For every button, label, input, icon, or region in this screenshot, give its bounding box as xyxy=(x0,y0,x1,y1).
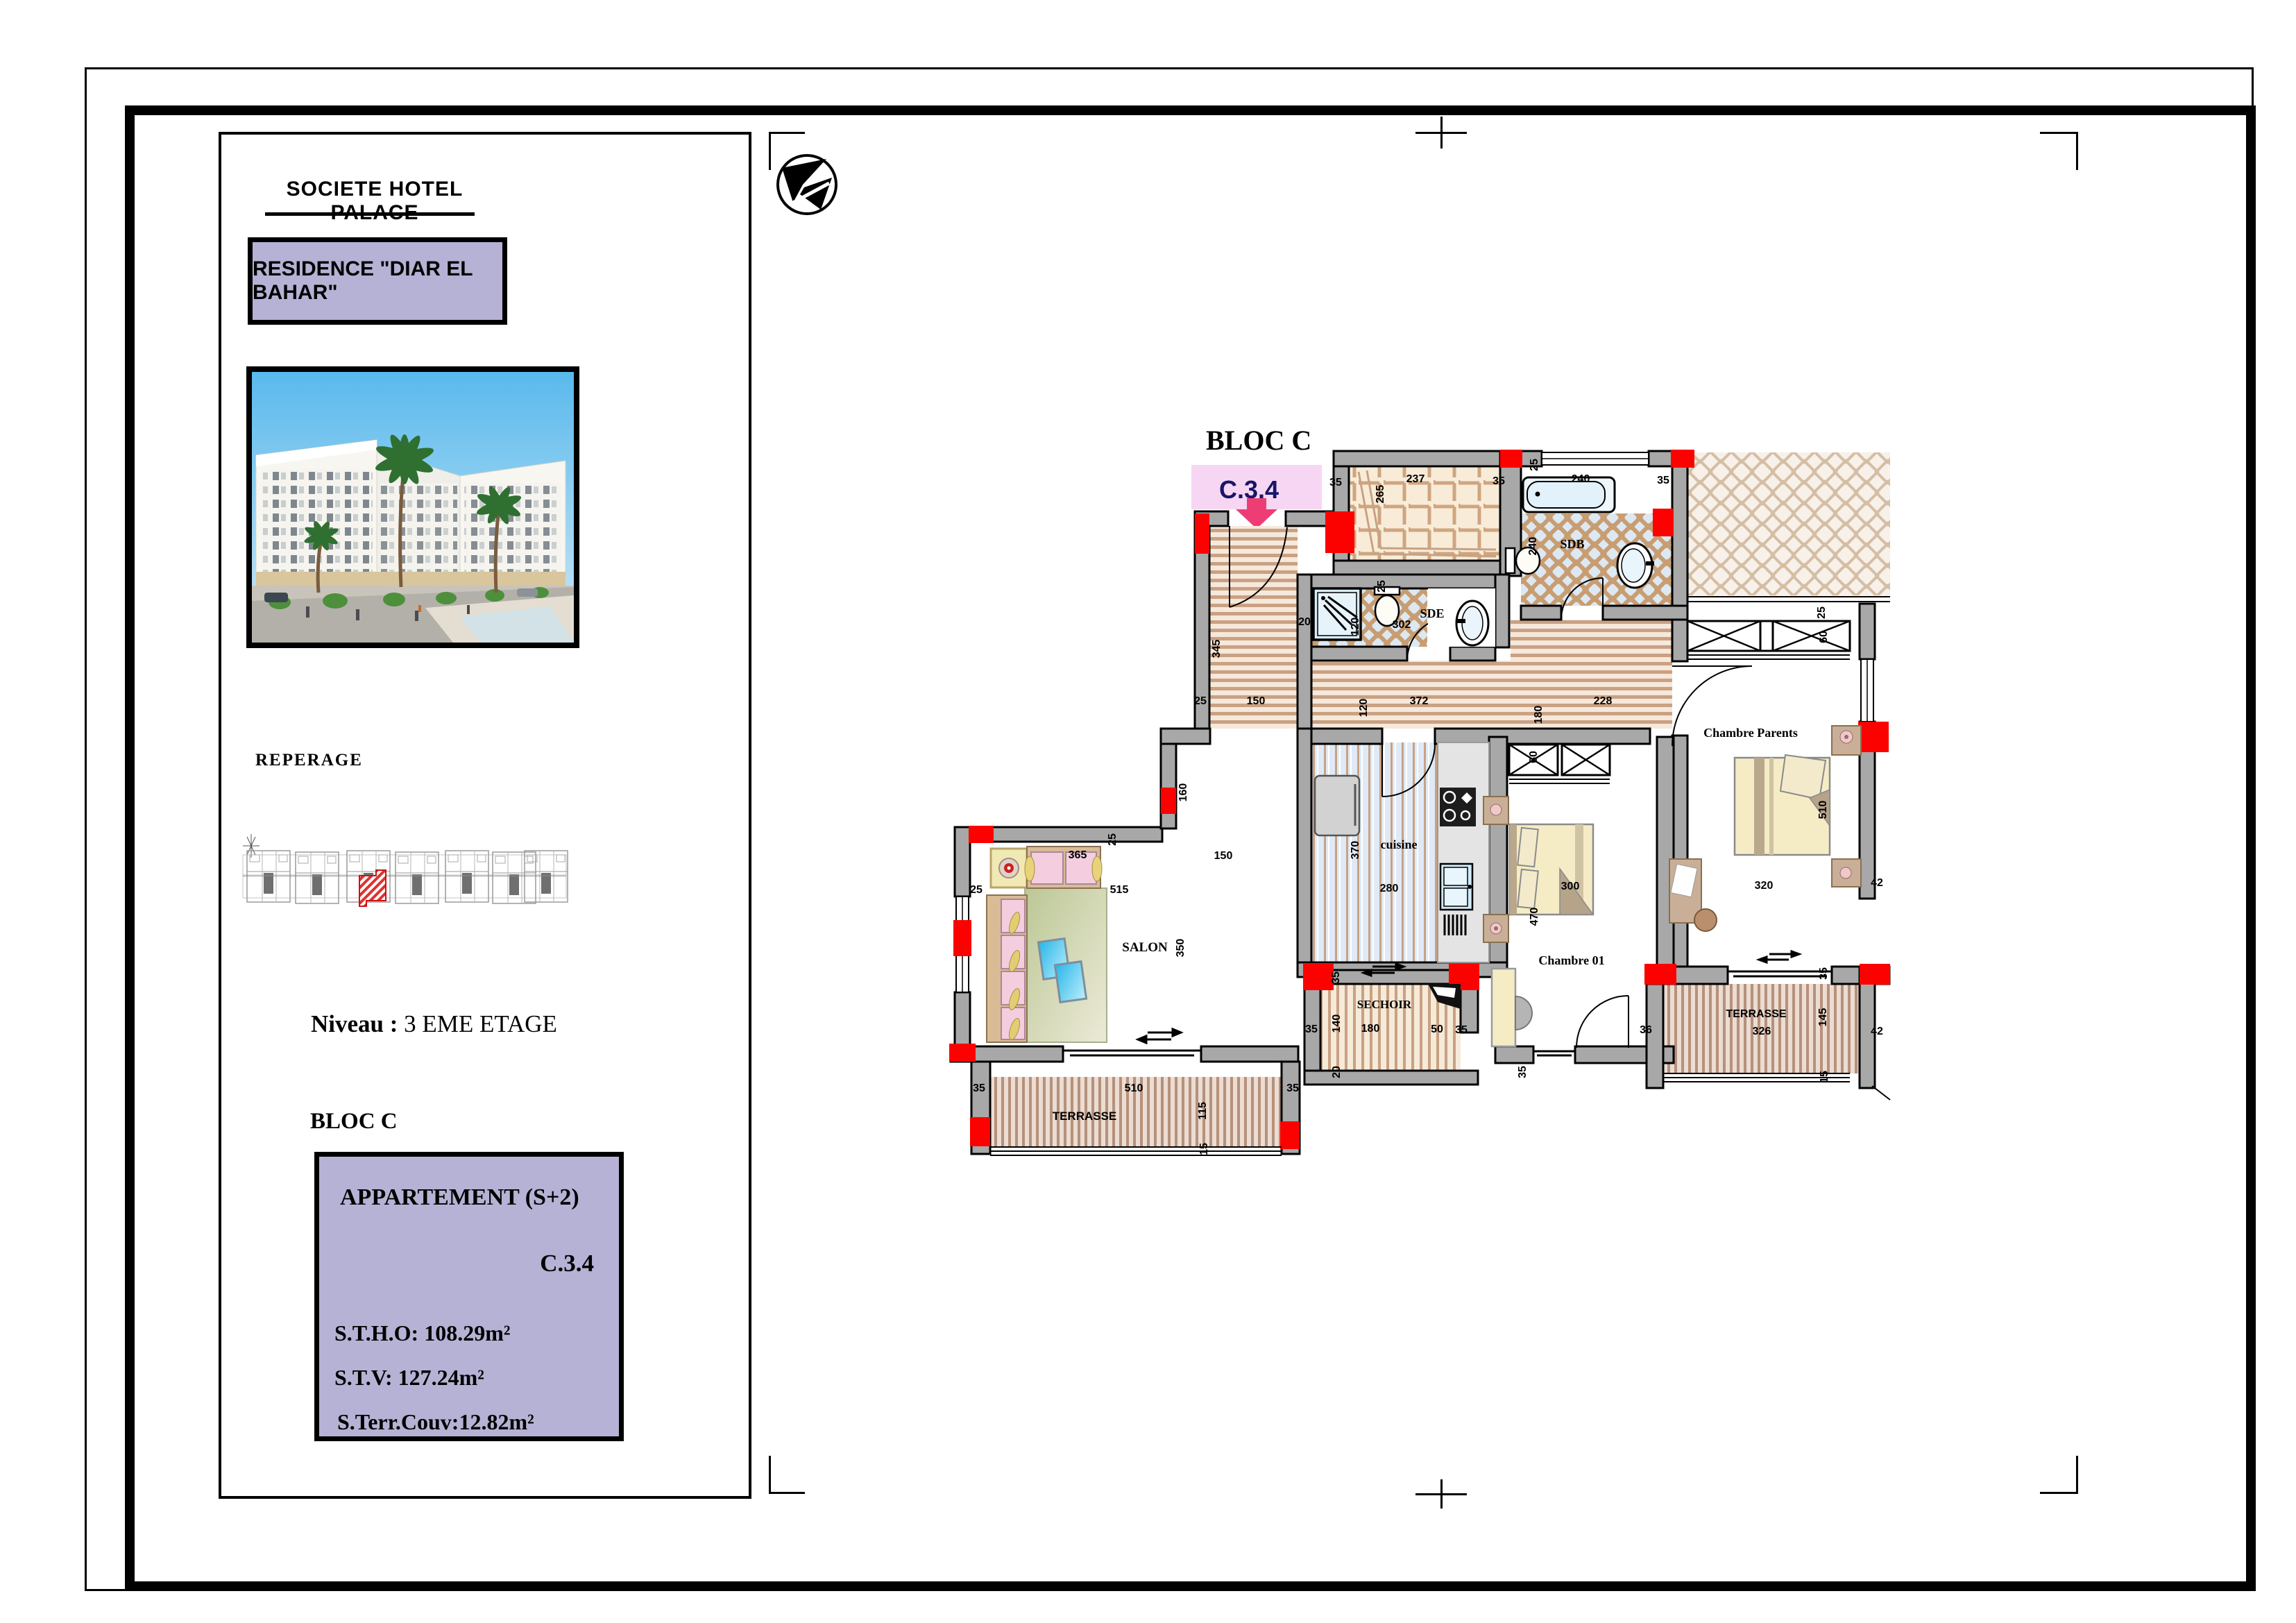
residence-name: RESIDENCE "DIAR EL BAHAR" xyxy=(253,257,502,305)
dimension-label: 510 xyxy=(1125,1082,1143,1094)
dimension-label: 237 xyxy=(1406,473,1425,485)
dimension-label: 370 xyxy=(1350,841,1361,860)
bathtub xyxy=(1523,477,1615,512)
parents-bedroom-furniture xyxy=(1669,726,1861,931)
dimension-label: 15 xyxy=(1819,1071,1830,1083)
dimension-label: 345 xyxy=(1211,640,1223,658)
dimension-label: 470 xyxy=(1529,908,1540,926)
dimension-label: 35 xyxy=(1329,477,1342,488)
building-illustration xyxy=(252,372,574,643)
drawing-sheet: SOCIETE HOTEL PALACE RESIDENCE "DIAR EL … xyxy=(0,0,2296,1623)
room-label: TERRASSE xyxy=(1053,1110,1117,1123)
room-label: SECHOIR xyxy=(1357,998,1412,1011)
reg-mark xyxy=(769,132,771,170)
dimension-label: 35 xyxy=(1517,1066,1529,1078)
apartment-info-box: APPARTEMENT (S+2) C.3.4 S.T.H.O: 108.29m… xyxy=(314,1152,624,1441)
dimension-label: 35 xyxy=(973,1082,985,1094)
dimension-label: 240 xyxy=(1527,537,1539,556)
reg-mark xyxy=(1440,1479,1443,1509)
room-label: Chambre 01 xyxy=(1538,953,1604,967)
bloc-label-panel: BLOC C xyxy=(310,1109,398,1135)
residence-name-box: RESIDENCE "DIAR EL BAHAR" xyxy=(248,237,507,325)
dimension-label: 25 xyxy=(1194,695,1207,707)
dimension-label: 25 xyxy=(970,884,983,896)
reperage-label: REPERAGE xyxy=(255,751,363,770)
salon-furniture xyxy=(987,847,1107,1042)
level-value: 3 EME ETAGE xyxy=(404,1010,557,1037)
dimension-label: 36 xyxy=(1640,1024,1652,1036)
dimension-label: 120 xyxy=(1350,618,1361,636)
dimension-label: 120 xyxy=(1358,699,1370,717)
reg-mark xyxy=(2076,132,2078,170)
surface-stv: S.T.V: 127.24m² xyxy=(334,1365,484,1391)
dimension-label: 42 xyxy=(1871,877,1883,889)
dimension-label: 25 xyxy=(1376,580,1388,593)
dimension-label: 228 xyxy=(1594,695,1613,707)
dimension-label: 160 xyxy=(1177,783,1189,802)
dimension-label: 115 xyxy=(1197,1102,1209,1120)
reg-mark xyxy=(2040,132,2078,134)
reg-mark xyxy=(2076,1456,2078,1494)
dimension-label: 42 xyxy=(1871,1026,1883,1037)
level-label: Niveau : xyxy=(311,1010,398,1037)
dimension-label: 20 xyxy=(1298,616,1311,628)
dimension-label: 60 xyxy=(1528,751,1540,763)
dimension-label: 365 xyxy=(1069,849,1087,861)
dimension-label: 20 xyxy=(1331,1066,1343,1078)
room-label: 326 xyxy=(1753,1026,1771,1037)
site-plan xyxy=(237,812,570,916)
company-name: SOCIETE HOTEL PALACE xyxy=(243,178,507,225)
dimension-label: 510 xyxy=(1817,801,1829,819)
room-label: SALON xyxy=(1122,940,1168,955)
reg-mark xyxy=(769,132,805,134)
dimension-label: 140 xyxy=(1331,1014,1343,1033)
dimension-label: 180 xyxy=(1533,706,1545,724)
dimension-label: 25 xyxy=(1816,606,1828,619)
dimension-label: 25 xyxy=(1107,833,1119,846)
company-underline xyxy=(265,212,475,216)
north-arrow-icon xyxy=(772,151,842,221)
dimension-label: 50 xyxy=(1431,1023,1443,1035)
dimension-label: 15 xyxy=(1198,1143,1210,1155)
reg-mark xyxy=(769,1456,771,1494)
room-label: SDE xyxy=(1420,606,1444,620)
dimension-label: 60 xyxy=(1818,631,1830,643)
apartment-code: C.3.4 xyxy=(540,1250,594,1277)
dimension-label: 35 xyxy=(1818,967,1830,980)
dimension-label: 350 xyxy=(1175,939,1187,958)
reg-mark xyxy=(2040,1492,2078,1494)
dimension-label: 145 xyxy=(1817,1008,1829,1027)
reg-mark xyxy=(769,1492,805,1494)
dimension-label: 515 xyxy=(1110,884,1129,896)
apartment-type: APPARTEMENT (S+2) xyxy=(340,1184,579,1211)
dimension-label: 150 xyxy=(1247,695,1266,707)
dimension-label: 180 xyxy=(1361,1023,1380,1035)
dimension-label: 320 xyxy=(1755,880,1774,892)
plan-bloc-label: BLOC C xyxy=(1206,425,1311,456)
surface-terrasse: S.Terr.Couv:12.82m² xyxy=(337,1409,534,1435)
room-label: TERRASSE xyxy=(1726,1008,1786,1020)
floor-plan: BLOC C C.3.4 xyxy=(909,409,1950,1409)
dimension-label: 280 xyxy=(1380,883,1399,894)
dimension-label: 150 xyxy=(1214,850,1233,862)
room-label: SDB xyxy=(1560,537,1584,551)
room-label: Chambre Parents xyxy=(1703,726,1798,740)
dimension-label: 265 xyxy=(1375,485,1386,504)
surface-stho: S.T.H.O: 108.29m² xyxy=(334,1320,510,1346)
dimension-label: 35 xyxy=(1305,1023,1318,1035)
dimension-label: 35 xyxy=(1286,1082,1299,1094)
dimension-label: 240 xyxy=(1572,473,1590,485)
dimension-label: 300 xyxy=(1561,881,1580,892)
reg-mark xyxy=(1440,117,1443,148)
level-caption: Niveau : 3 EME ETAGE xyxy=(311,1010,557,1038)
room-label: cuisine xyxy=(1380,838,1417,851)
dimension-label: 25 xyxy=(1529,459,1540,471)
dimension-label: 302 xyxy=(1393,619,1411,631)
dimension-label: 35 xyxy=(1493,475,1505,487)
dimension-label: 35 xyxy=(1455,1024,1468,1036)
building-photo xyxy=(246,366,579,648)
dimension-label: 35 xyxy=(1330,971,1342,984)
dimension-label: 372 xyxy=(1410,695,1429,707)
dimension-label: 35 xyxy=(1657,475,1669,486)
